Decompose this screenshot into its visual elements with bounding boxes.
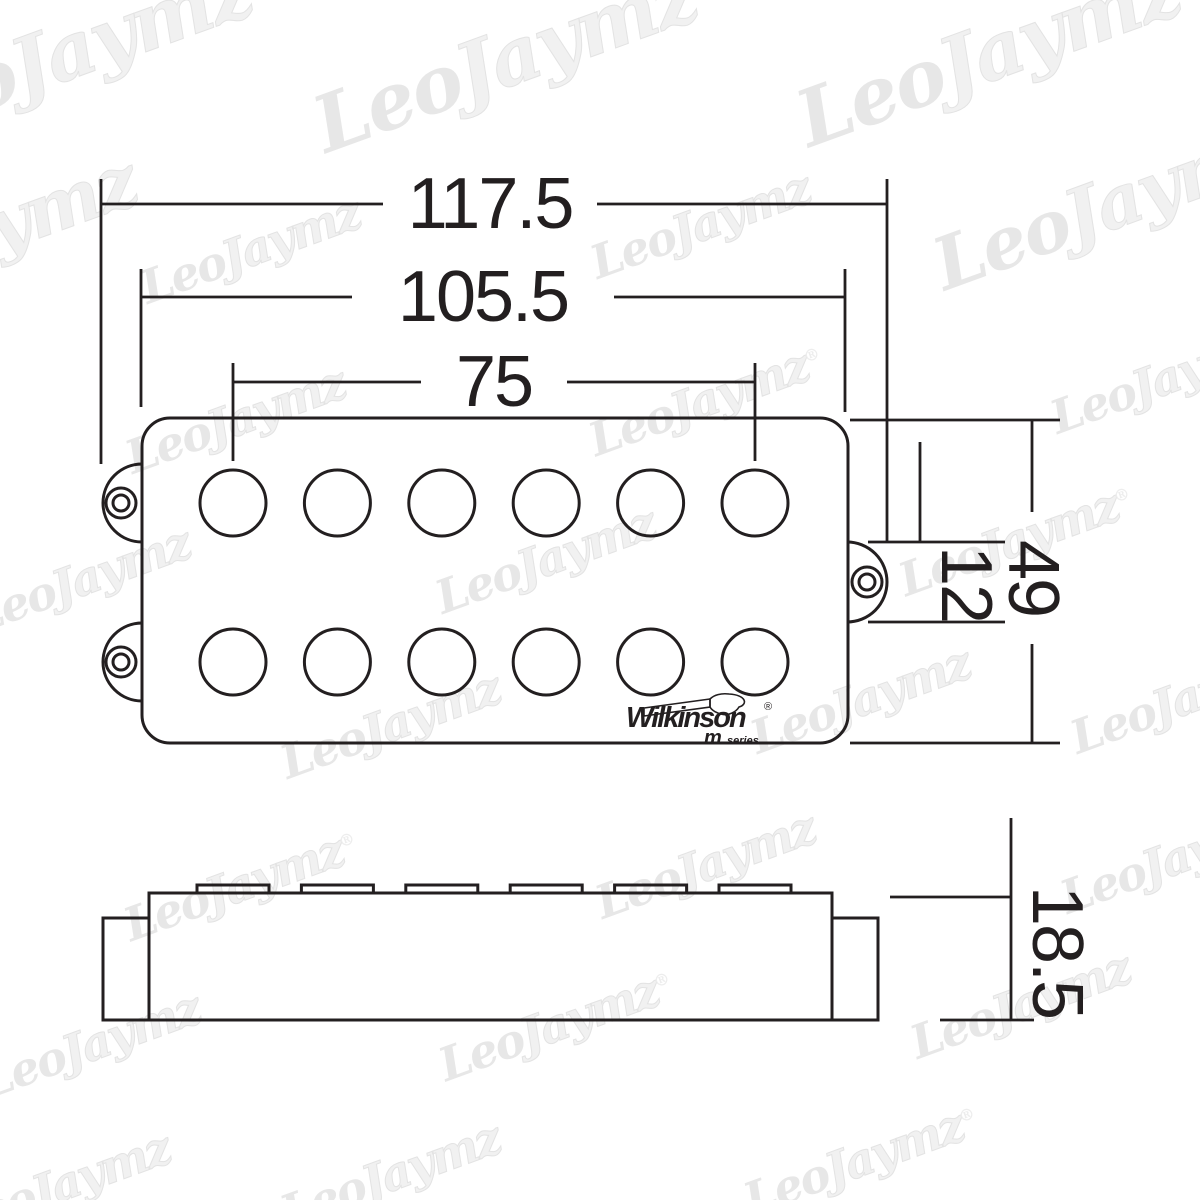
screw-hole-inner <box>113 495 129 511</box>
pole-piece <box>409 470 475 536</box>
logo-series-text: series <box>727 736 759 747</box>
pole-piece <box>304 470 370 536</box>
pole-piece <box>722 470 788 536</box>
pole-piece <box>618 470 684 536</box>
side-view-ear-left <box>103 918 149 1020</box>
screw-hole-inner <box>859 574 875 590</box>
pole-piece <box>513 629 579 695</box>
pole-piece <box>304 629 370 695</box>
side-view-pole-top <box>615 885 687 893</box>
logo-m-series: m <box>704 728 722 748</box>
side-view-pole-top <box>510 885 582 893</box>
screw-hole-outer <box>106 488 136 518</box>
pole-piece <box>200 470 266 536</box>
side-view-ear-right <box>832 918 878 1020</box>
side-view-pole-top <box>406 885 478 893</box>
dim-label-pole-span: 75 <box>456 346 532 418</box>
side-view-pole-top <box>719 885 791 893</box>
screw-hole-outer <box>106 647 136 677</box>
pole-piece <box>513 470 579 536</box>
logo-brand-text: Wilkinson <box>626 702 745 735</box>
dim-label-body-width: 105.5 <box>398 261 568 333</box>
dim-label-overall-width: 117.5 <box>408 168 573 240</box>
screw-hole-inner <box>113 654 129 670</box>
pickup-dimension-drawing: LeoJaymzLeoJaymzLeoJaymz®LeoJaymzLeoJaym… <box>0 0 1200 1200</box>
screw-hole-outer <box>852 567 882 597</box>
side-view-pole-top <box>197 885 269 893</box>
wilkinson-logo: Wilkinson ® m series <box>626 692 782 748</box>
dim-label-ear-height: 12 <box>930 546 1002 622</box>
side-view-body <box>149 893 832 1020</box>
pole-piece <box>722 629 788 695</box>
dim-label-body-height: 49 <box>997 540 1069 616</box>
dim-label-side-height: 18.5 <box>1021 886 1093 1018</box>
logo-registered-mark: ® <box>764 701 772 713</box>
pole-piece <box>409 629 475 695</box>
pole-piece <box>618 629 684 695</box>
pole-piece <box>200 629 266 695</box>
side-view-pole-top <box>301 885 373 893</box>
